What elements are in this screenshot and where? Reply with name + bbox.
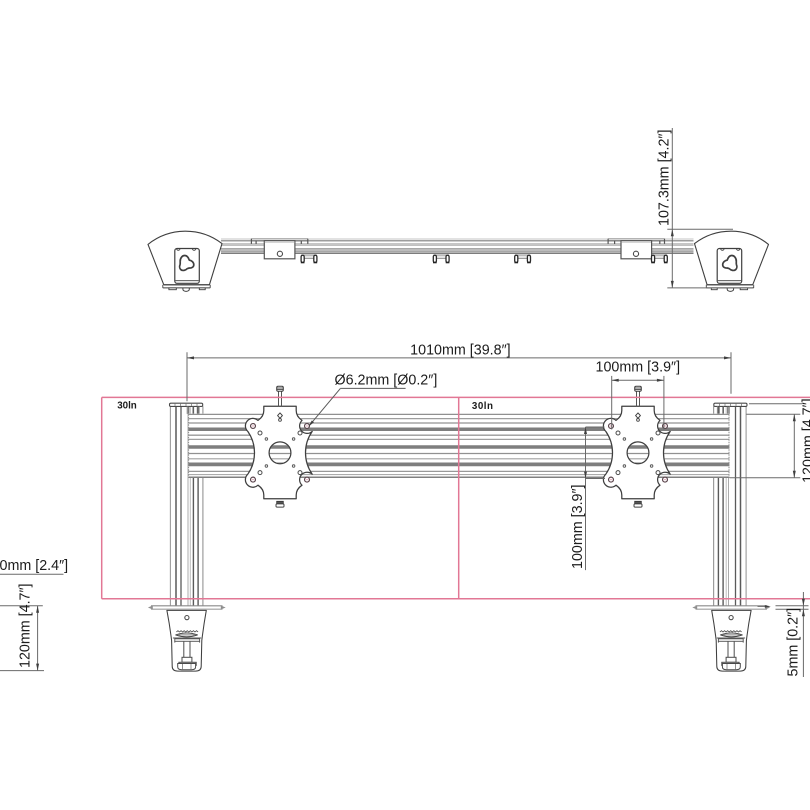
svg-text:Ø6.2mm [Ø0.2″]: Ø6.2mm [Ø0.2″] [335,373,438,389]
svg-text:1010mm [39.8″]: 1010mm [39.8″] [410,342,510,358]
svg-text:120mm [4.7″]: 120mm [4.7″] [18,583,34,668]
svg-text:5mm [0.2″]: 5mm [0.2″] [786,608,802,677]
svg-text:30ln: 30ln [472,401,494,412]
svg-text:107.3mm [4.2″]: 107.3mm [4.2″] [657,130,673,226]
svg-text:100mm [3.9″]: 100mm [3.9″] [570,484,586,569]
svg-text:30ln: 30ln [117,400,137,411]
svg-text:0mm [2.4″]: 0mm [2.4″] [0,558,68,574]
svg-text:100mm [3.9″]: 100mm [3.9″] [596,360,681,376]
svg-text:120mm [4.7″]: 120mm [4.7″] [801,398,810,483]
